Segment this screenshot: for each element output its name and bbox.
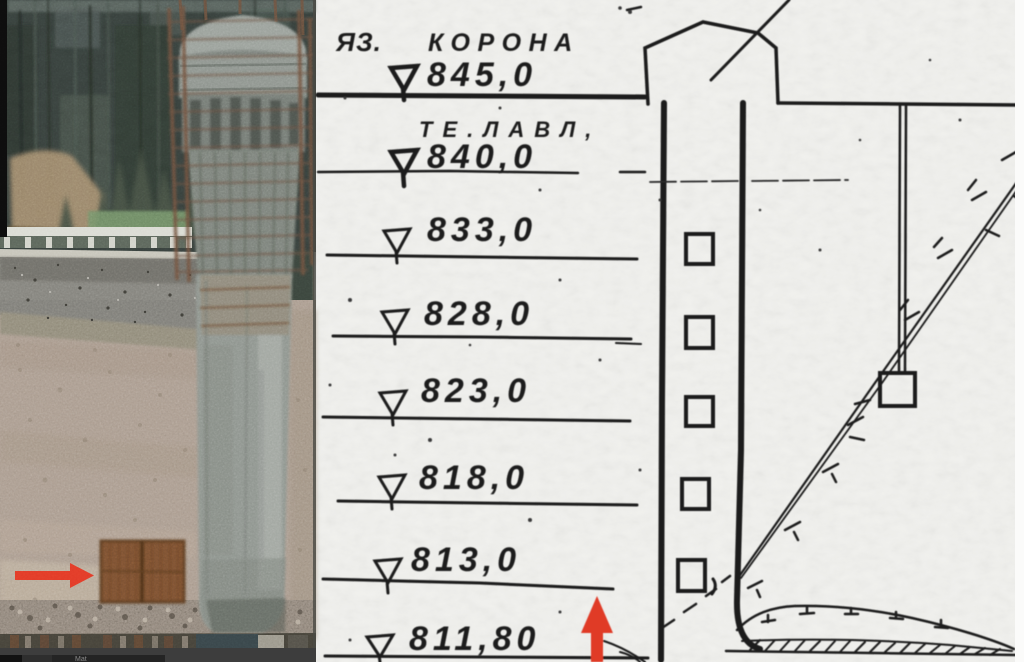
svg-text:Mat: Mat bbox=[75, 656, 87, 662]
svg-text:845,0: 845,0 bbox=[427, 56, 537, 94]
svg-text:811,80: 811,80 bbox=[409, 620, 540, 658]
svg-text:ЯЗ.: ЯЗ. bbox=[335, 27, 382, 57]
svg-text:823,0: 823,0 bbox=[421, 372, 531, 410]
svg-text:828,0: 828,0 bbox=[424, 295, 534, 333]
svg-text:833,0: 833,0 bbox=[427, 211, 537, 249]
svg-text:813,0: 813,0 bbox=[411, 541, 521, 579]
svg-text:КОРОНА: КОРОНА bbox=[428, 29, 580, 57]
svg-text:818,0: 818,0 bbox=[419, 459, 529, 497]
